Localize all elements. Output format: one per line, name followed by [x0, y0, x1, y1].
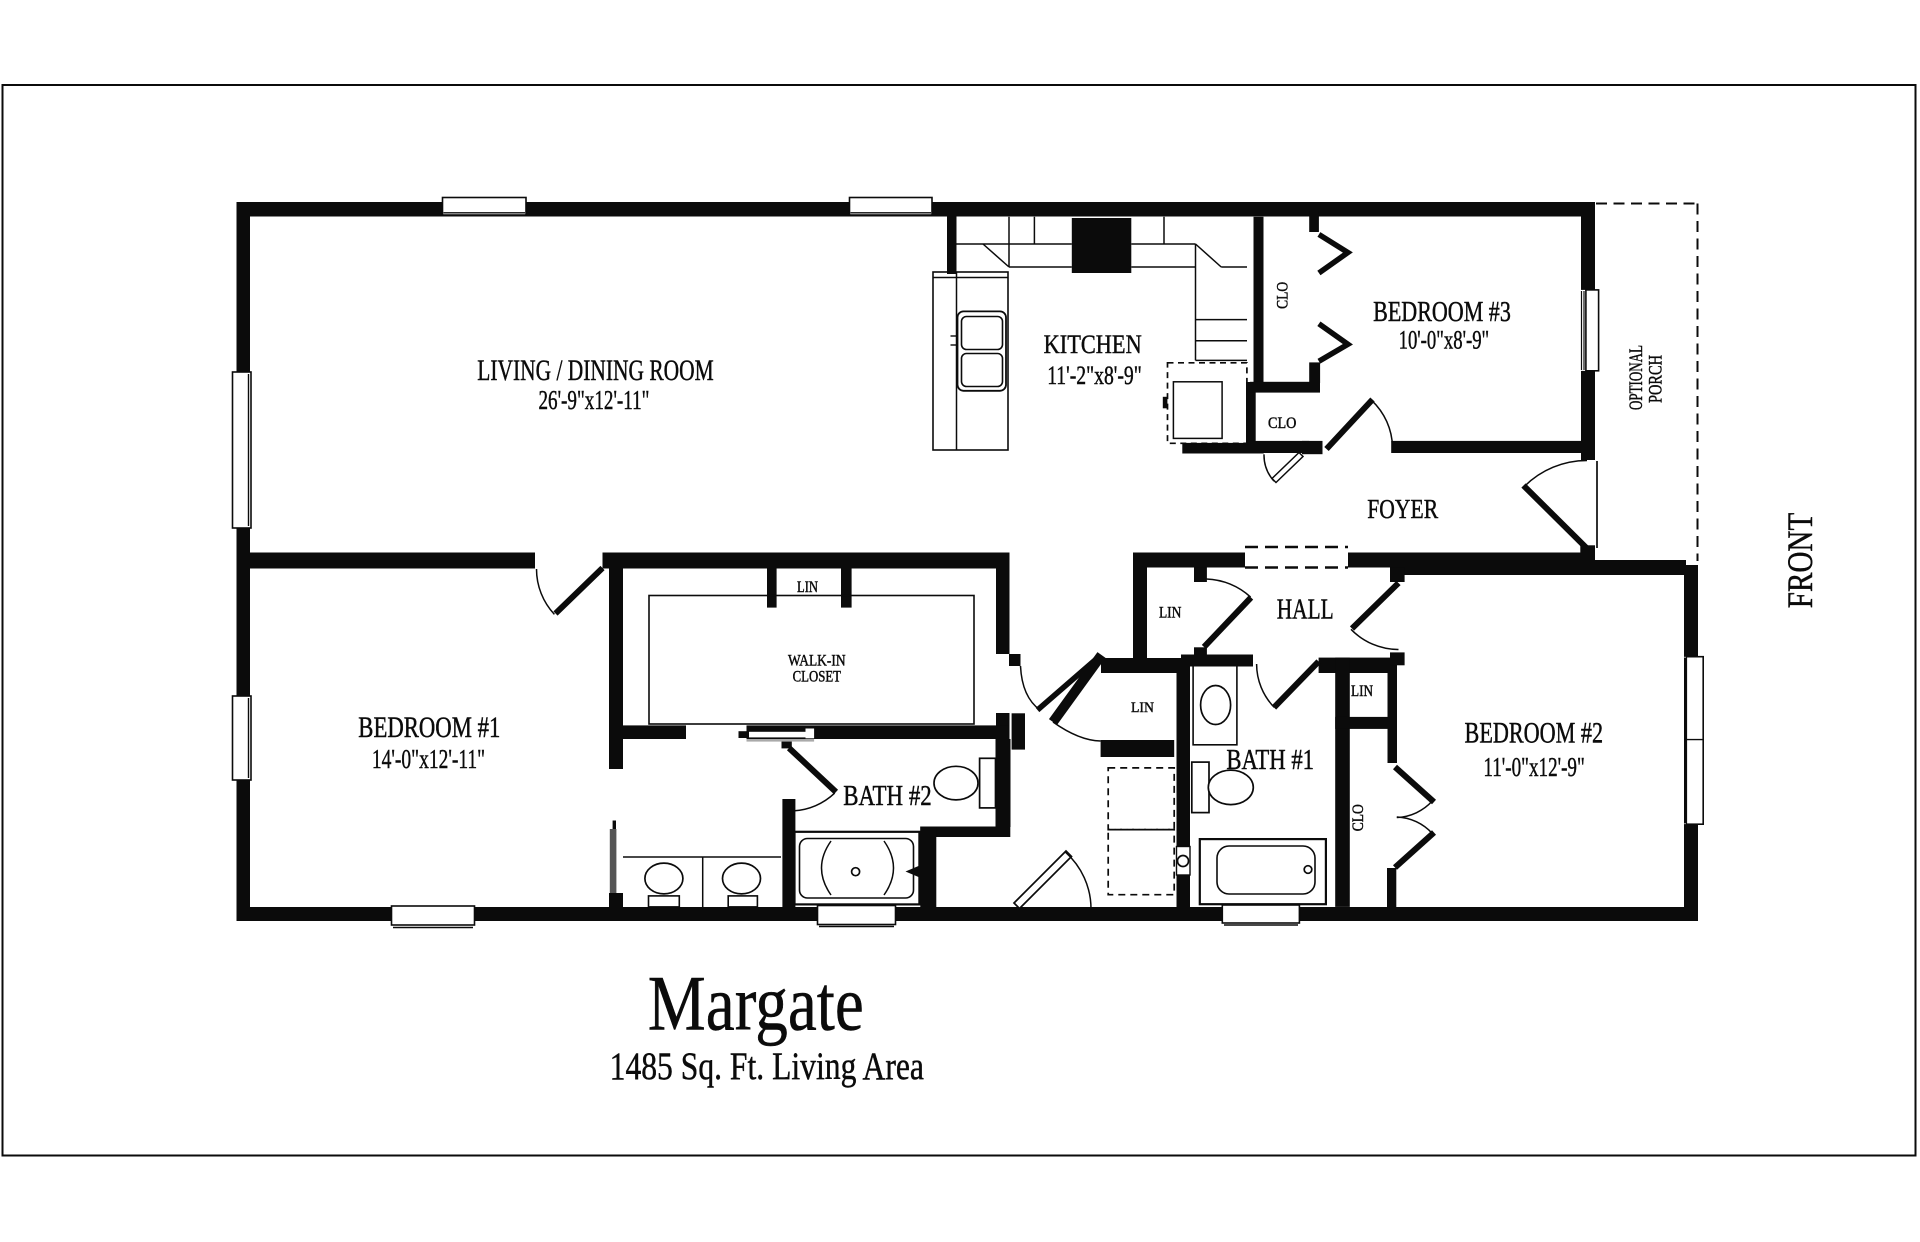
svg-text:LIN: LIN — [797, 579, 818, 596]
svg-text:LIN: LIN — [1131, 700, 1154, 716]
svg-text:KITCHEN: KITCHEN — [1044, 329, 1142, 359]
svg-text:26'-9"x12'-11": 26'-9"x12'-11" — [539, 385, 650, 415]
svg-text:BATH #1: BATH #1 — [1226, 745, 1314, 776]
svg-text:CLO: CLO — [1275, 282, 1292, 309]
svg-text:LIN: LIN — [1159, 605, 1182, 622]
svg-text:1485 Sq. Ft. Living Area: 1485 Sq. Ft. Living Area — [610, 1045, 924, 1088]
svg-text:CLO: CLO — [1350, 804, 1367, 831]
svg-text:OPTIONAL: OPTIONAL — [1626, 345, 1647, 410]
svg-text:11'-0"x12'-9": 11'-0"x12'-9" — [1483, 752, 1584, 782]
svg-text:11'-2"x8'-9": 11'-2"x8'-9" — [1047, 361, 1142, 390]
svg-text:BEDROOM #3: BEDROOM #3 — [1373, 297, 1511, 328]
svg-text:FRONT: FRONT — [1780, 513, 1820, 609]
svg-text:LIVING / DINING ROOM: LIVING / DINING ROOM — [477, 355, 713, 387]
svg-text:10'-0"x8'-9": 10'-0"x8'-9" — [1399, 326, 1490, 355]
svg-text:Margate: Margate — [648, 959, 864, 1046]
svg-text:BATH #2: BATH #2 — [843, 781, 932, 812]
svg-text:CLO: CLO — [1268, 415, 1296, 432]
svg-text:LIN: LIN — [1351, 683, 1373, 700]
svg-text:HALL: HALL — [1277, 594, 1334, 626]
svg-text:BEDROOM #1: BEDROOM #1 — [358, 712, 500, 744]
svg-text:CLOSET: CLOSET — [793, 669, 842, 686]
svg-text:PORCH: PORCH — [1646, 355, 1667, 403]
svg-text:14'-0"x12'-11": 14'-0"x12'-11" — [372, 744, 485, 774]
svg-text:BEDROOM #2: BEDROOM #2 — [1465, 717, 1604, 749]
svg-text:FOYER: FOYER — [1367, 493, 1438, 524]
svg-text:WALK-IN: WALK-IN — [788, 653, 846, 670]
